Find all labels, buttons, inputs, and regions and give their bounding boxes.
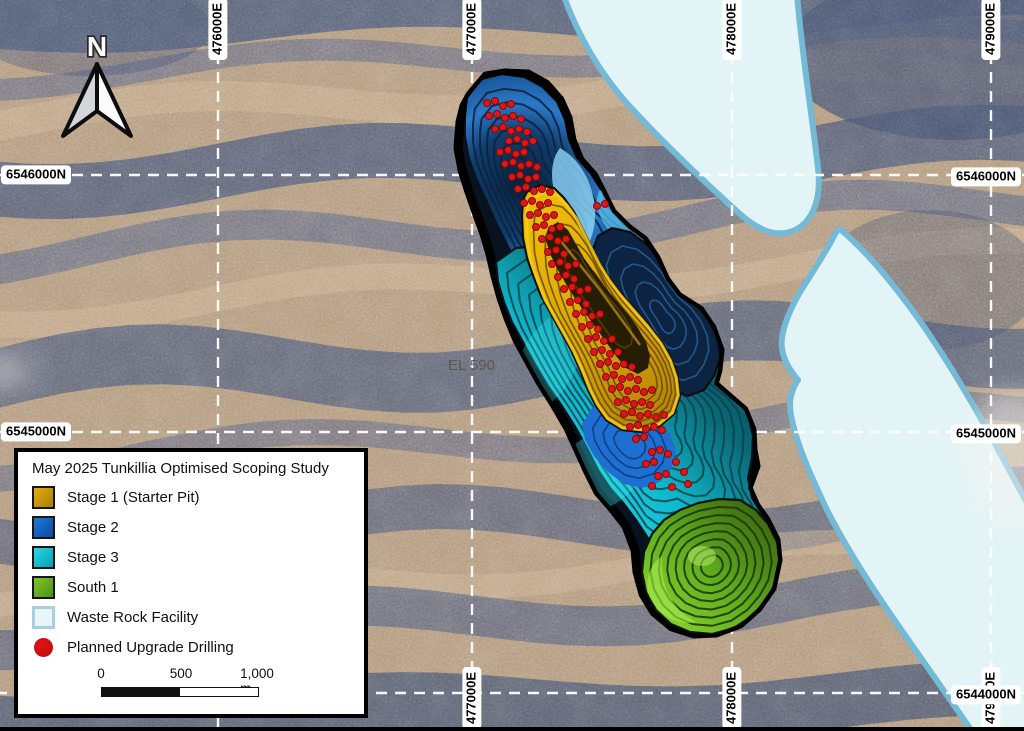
drill-hole-dot: [623, 397, 630, 404]
drill-hole-dot: [557, 224, 564, 231]
drill-hole-dot: [486, 113, 493, 120]
drill-hole-dot: [661, 412, 668, 419]
drill-hole-dot: [502, 115, 509, 122]
drill-hole-dot: [492, 98, 499, 105]
drill-hole-dot: [549, 226, 556, 233]
drill-hole-dot: [541, 222, 548, 229]
drill-hole-dot: [500, 124, 507, 131]
drill-hole-dot: [534, 164, 541, 171]
drill-hole-dot: [521, 149, 528, 156]
drill-hole-dot: [484, 100, 491, 107]
drill-hole-dot: [599, 347, 606, 354]
drill-hole-dot: [641, 434, 648, 441]
drill-hole-dot: [621, 361, 628, 368]
drill-hole-dot: [641, 389, 648, 396]
drill-hole-dot: [653, 414, 660, 421]
drill-hole-dot: [523, 184, 530, 191]
drill-hole-dot: [514, 136, 521, 143]
drill-hole-dot: [681, 469, 688, 476]
drill-hole-dot: [543, 214, 550, 221]
drill-hole-dot: [506, 138, 513, 145]
drill-hole-dot: [524, 129, 531, 136]
scale-bar-empty-segment: [180, 688, 258, 696]
drill-hole-dot: [561, 286, 568, 293]
drill-hole-dot: [530, 138, 537, 145]
drill-hole-dot: [639, 399, 646, 406]
drill-hole-dot: [510, 113, 517, 120]
legend-item-label: Stage 1 (Starter Pit): [67, 489, 200, 506]
drill-hole-dot: [513, 151, 520, 158]
drill-hole-dot: [545, 249, 552, 256]
drill-hole-dot: [527, 212, 534, 219]
drill-hole-dot: [547, 234, 554, 241]
drill-hole-dot: [597, 311, 604, 318]
drill-hole-dot: [609, 336, 616, 343]
drill-hole-dot: [551, 212, 558, 219]
legend-title: May 2025 Tunkillia Optimised Scoping Stu…: [32, 460, 354, 477]
drill-hole-dot: [505, 147, 512, 154]
drill-hole-dot: [657, 447, 664, 454]
drill-hole-dot: [518, 163, 525, 170]
drill-hole-dot: [509, 174, 516, 181]
drill-hole-dot: [510, 159, 517, 166]
legend-panel: May 2025 Tunkillia Optimised Scoping Stu…: [14, 448, 368, 718]
drill-hole-dot: [645, 411, 652, 418]
drill-hole-dot: [545, 200, 552, 207]
drill-hole-dot: [517, 172, 524, 179]
drill-hole-dot: [583, 301, 590, 308]
drill-hole-dot: [605, 359, 612, 366]
drill-hole-dot: [631, 401, 638, 408]
drill-hole-dot: [649, 483, 656, 490]
drill-hole-dot: [659, 427, 666, 434]
map-frame-edge: [0, 727, 1024, 731]
drill-hole-dot: [619, 376, 626, 383]
legend-item: Planned Upgrade Drilling: [18, 632, 364, 662]
drill-hole-dot: [673, 459, 680, 466]
drill-hole-dot: [508, 128, 515, 135]
drill-hole-dot: [665, 451, 672, 458]
drill-hole-dot: [515, 186, 522, 193]
legend-item: South 1: [18, 572, 364, 602]
drill-hole-dot: [508, 101, 515, 108]
drill-hole-dot: [521, 200, 528, 207]
drill-hole-dot: [531, 188, 538, 195]
drill-hole-dot: [627, 424, 634, 431]
drill-hole-dot: [595, 326, 602, 333]
drill-hole-dot: [557, 259, 564, 266]
drill-hole-dot: [571, 276, 578, 283]
drill-hole-dot: [565, 263, 572, 270]
legend-items: Stage 1 (Starter Pit)Stage 2Stage 3South…: [18, 482, 364, 662]
drill-hole-dot: [607, 351, 614, 358]
legend-swatch-wrf-icon: [32, 606, 55, 629]
drill-hole-dot: [621, 411, 628, 418]
drill-hole-dot: [685, 481, 692, 488]
drill-hole-dot: [502, 161, 509, 168]
drill-hole-dot: [669, 484, 676, 491]
drill-hole-dot: [547, 189, 554, 196]
drill-hole-dot: [602, 201, 609, 208]
legend-item: Stage 3: [18, 542, 364, 572]
drill-hole-dot: [529, 198, 536, 205]
legend-item-label: Planned Upgrade Drilling: [67, 639, 234, 656]
drill-hole-dot: [633, 436, 640, 443]
legend-swatch-stage1-icon: [32, 486, 55, 509]
drill-hole-dot: [633, 386, 640, 393]
drill-hole-dot: [601, 338, 608, 345]
scale-bar: 05001,000 m: [101, 666, 281, 706]
drill-hole-dot: [629, 409, 636, 416]
drill-hole-dot: [609, 386, 616, 393]
drill-hole-dot: [575, 297, 582, 304]
scale-bar-tick-label: 0: [97, 666, 105, 681]
drill-hole-dot: [613, 363, 620, 370]
drill-hole-dot: [651, 459, 658, 466]
drill-hole-dot: [615, 349, 622, 356]
drill-hole-dot: [635, 377, 642, 384]
legend-swatch-south1-icon: [32, 576, 55, 599]
drill-hole-dot: [518, 116, 525, 123]
scale-bar-tick-label: 500: [170, 666, 193, 681]
drill-hole-dot: [555, 238, 562, 245]
drill-hole-dot: [533, 224, 540, 231]
drill-hole-dot: [649, 449, 656, 456]
map-figure: EL 590 N 476000E477000E477000E478000E478…: [0, 0, 1024, 731]
legend-item-label: Stage 2: [67, 519, 119, 536]
drill-hole-dot: [649, 387, 656, 394]
drill-hole-dot: [525, 176, 532, 183]
drill-hole-dot: [663, 471, 670, 478]
drill-hole-dot: [611, 372, 618, 379]
drill-hole-dot: [537, 202, 544, 209]
drill-hole-dot: [585, 286, 592, 293]
drill-hole-dot: [539, 236, 546, 243]
drill-hole-dot: [567, 299, 574, 306]
drill-hole-dot: [593, 334, 600, 341]
drill-hole-dot: [563, 236, 570, 243]
drill-hole-dot: [643, 461, 650, 468]
drill-hole-dot: [579, 324, 586, 331]
drill-hole-dot: [553, 247, 560, 254]
drill-hole-dot: [555, 274, 562, 281]
drill-hole-dot: [563, 272, 570, 279]
drill-hole-dot: [516, 126, 523, 133]
north-arrow-label: N: [87, 31, 107, 62]
tenement-label: EL 590: [448, 357, 495, 374]
drill-hole-dot: [549, 261, 556, 268]
drill-hole-dot: [617, 384, 624, 391]
drill-hole-dot: [539, 186, 546, 193]
drill-hole-dot: [500, 103, 507, 110]
scale-bar-filled-segment: [102, 688, 180, 696]
drill-hole-dot: [569, 284, 576, 291]
drill-hole-dot: [535, 210, 542, 217]
drill-hole-dot: [497, 149, 504, 156]
drill-hole-dot: [597, 361, 604, 368]
legend-swatch-dot-icon: [34, 638, 53, 657]
drill-hole-dot: [492, 126, 499, 133]
drill-hole-dot: [585, 336, 592, 343]
drill-hole-dot: [577, 288, 584, 295]
drill-hole-dot: [603, 374, 610, 381]
drill-hole-dot: [587, 322, 594, 329]
drill-hole-dot: [589, 313, 596, 320]
drill-hole-dot: [526, 161, 533, 168]
legend-item-label: Stage 3: [67, 549, 119, 566]
legend-swatch-stage3-icon: [32, 546, 55, 569]
drill-hole-dot: [494, 111, 501, 118]
drill-hole-dot: [581, 309, 588, 316]
drill-hole-dot: [637, 413, 644, 420]
drill-hole-dot: [625, 388, 632, 395]
legend-item: Stage 2: [18, 512, 364, 542]
drill-hole-dot: [522, 140, 529, 147]
drill-hole-dot: [627, 374, 634, 381]
legend-item-label: Waste Rock Facility: [67, 609, 198, 626]
legend-item: Stage 1 (Starter Pit): [18, 482, 364, 512]
drill-hole-dot: [615, 399, 622, 406]
drill-hole-dot: [591, 349, 598, 356]
drill-hole-dot: [594, 203, 601, 210]
legend-item-label: South 1: [67, 579, 119, 596]
drill-hole-dot: [651, 424, 658, 431]
scale-bar-graphic: [101, 687, 259, 697]
legend-swatch-stage2-icon: [32, 516, 55, 539]
drill-hole-dot: [655, 473, 662, 480]
drill-hole-dot: [647, 402, 654, 409]
legend-item: Waste Rock Facility: [18, 602, 364, 632]
drill-hole-dot: [561, 251, 568, 258]
drill-hole-dot: [629, 364, 636, 371]
drill-hole-dot: [533, 174, 540, 181]
drill-hole-dot: [635, 422, 642, 429]
drill-hole-dot: [573, 311, 580, 318]
drill-hole-dot: [643, 426, 650, 433]
drill-hole-dot: [573, 261, 580, 268]
